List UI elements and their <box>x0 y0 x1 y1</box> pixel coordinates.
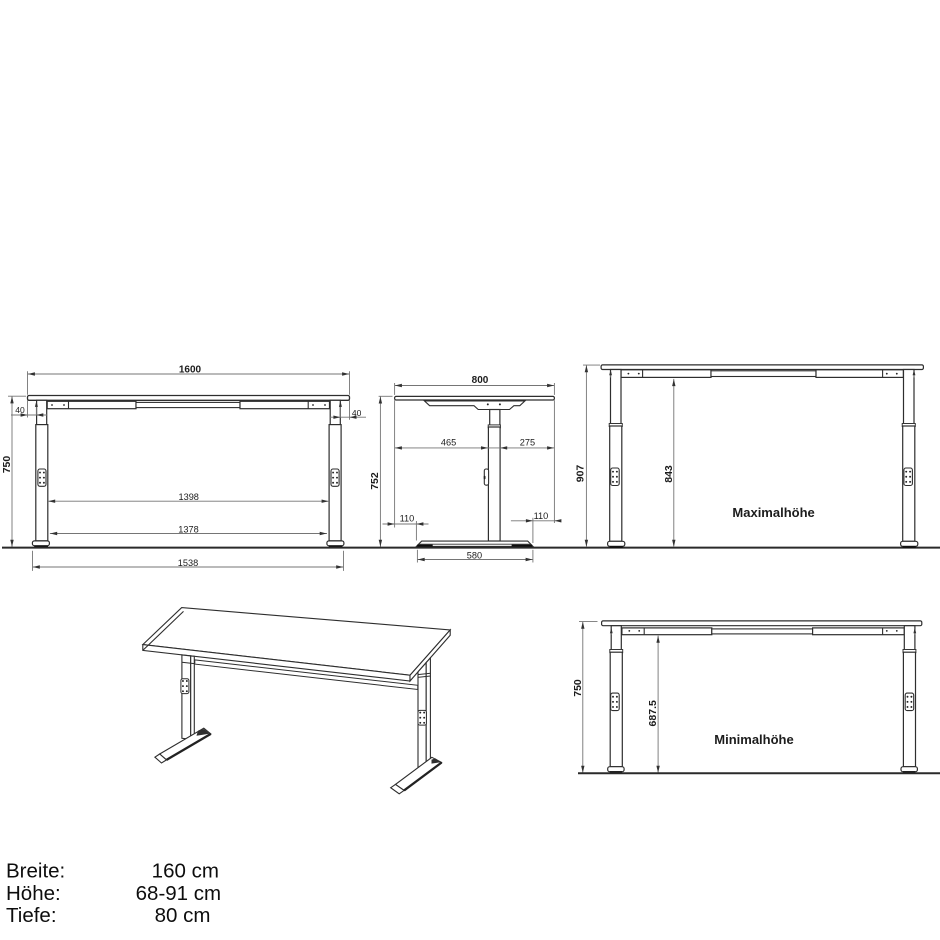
svg-text:465: 465 <box>441 437 456 447</box>
svg-text:1538: 1538 <box>178 558 198 568</box>
svg-text:580: 580 <box>467 550 482 560</box>
svg-text:80 cm: 80 cm <box>155 904 211 927</box>
svg-text:275: 275 <box>520 437 535 447</box>
svg-text:Minimalhöhe: Minimalhöhe <box>714 732 793 747</box>
svg-text:68-91 cm: 68-91 cm <box>136 882 221 905</box>
svg-text:1398: 1398 <box>178 492 198 502</box>
svg-text:110: 110 <box>400 513 415 523</box>
svg-text:Höhe:: Höhe: <box>6 882 61 905</box>
svg-text:1600: 1600 <box>179 364 202 375</box>
svg-text:Tiefe:: Tiefe: <box>6 904 57 927</box>
svg-text:907: 907 <box>575 465 587 483</box>
svg-text:160 cm: 160 cm <box>152 860 219 883</box>
svg-text:110: 110 <box>534 511 549 521</box>
svg-text:1378: 1378 <box>178 525 198 535</box>
svg-text:750: 750 <box>1 456 13 474</box>
svg-text:750: 750 <box>572 679 584 697</box>
svg-text:40: 40 <box>15 405 25 415</box>
svg-text:687.5: 687.5 <box>647 700 659 726</box>
svg-text:843: 843 <box>663 465 675 483</box>
svg-text:752: 752 <box>369 472 381 490</box>
svg-text:Breite:: Breite: <box>6 860 65 883</box>
svg-text:800: 800 <box>472 375 489 386</box>
svg-text:Maximalhöhe: Maximalhöhe <box>732 505 814 520</box>
